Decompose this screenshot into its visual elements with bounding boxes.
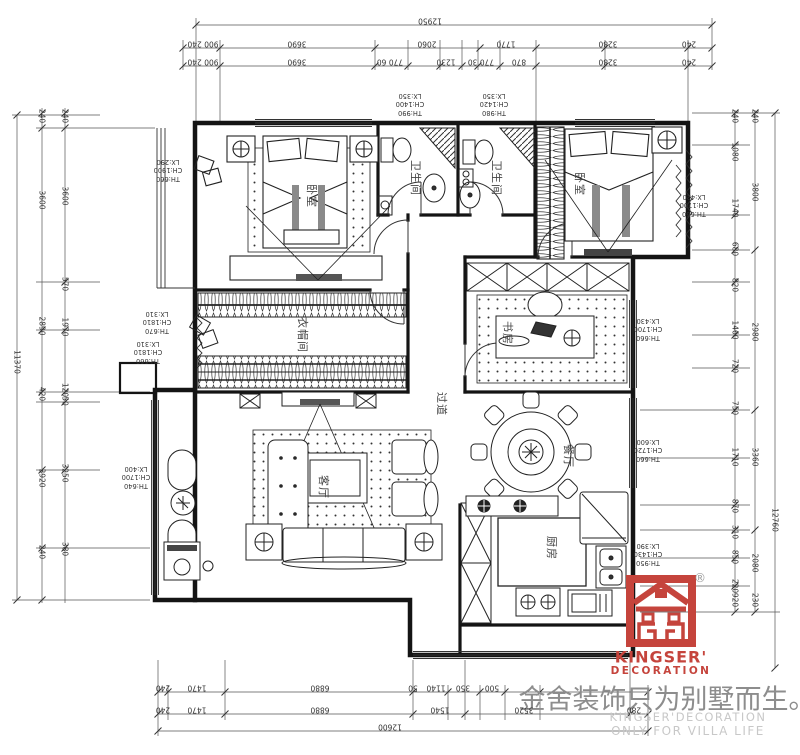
bedroom2-furniture bbox=[537, 127, 682, 259]
study-furniture bbox=[467, 263, 629, 383]
cloakroom-furniture bbox=[190, 293, 406, 388]
dining-furniture bbox=[471, 392, 591, 512]
living-room-furniture bbox=[240, 392, 442, 569]
kitchen-furniture bbox=[461, 492, 628, 623]
floor-plan-sheet: ® KINGSER' DECORATION 金舍装饰只为别墅而生。 KINGSE… bbox=[0, 0, 800, 755]
kingser-logo-emblem bbox=[630, 579, 692, 643]
balcony-furniture bbox=[164, 450, 213, 580]
floor-plan-drawing bbox=[0, 0, 800, 755]
master-bedroom-furniture bbox=[194, 136, 390, 281]
